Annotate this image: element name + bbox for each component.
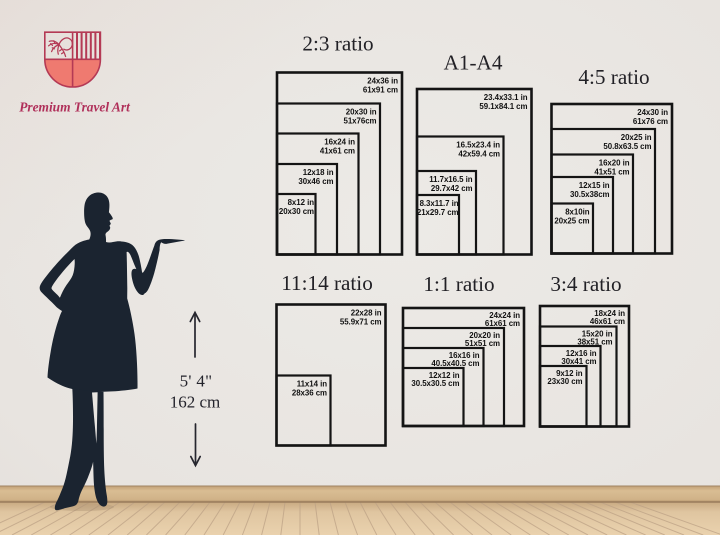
svg-text:15x20 in38x51 cm: 15x20 in38x51 cm (577, 329, 612, 346)
svg-text:A1-A4: A1-A4 (444, 51, 503, 75)
svg-text:5' 4": 5' 4" (180, 372, 213, 391)
svg-text:24x24 in61x61 cm: 24x24 in61x61 cm (485, 311, 520, 328)
svg-text:1:1 ratio: 1:1 ratio (423, 272, 494, 296)
svg-text:2:3 ratio: 2:3 ratio (302, 32, 373, 56)
svg-text:8.3x11.7 in21x29.7 cm: 8.3x11.7 in21x29.7 cm (417, 199, 459, 217)
svg-text:16.5x23.4 in42x59.4 cm: 16.5x23.4 in42x59.4 cm (456, 141, 500, 159)
svg-text:162 cm: 162 cm (170, 393, 221, 412)
svg-text:11:14 ratio: 11:14 ratio (281, 271, 373, 295)
svg-text:16x20 in41x51 cm: 16x20 in41x51 cm (594, 159, 629, 177)
svg-text:23.4x33.1 in59.1x84.1 cm: 23.4x33.1 in59.1x84.1 cm (479, 93, 527, 111)
svg-text:11x14 in28x36 cm: 11x14 in28x36 cm (292, 380, 327, 398)
svg-text:Premium Travel Art: Premium Travel Art (19, 100, 131, 115)
svg-text:20x30 in51x76cm: 20x30 in51x76cm (344, 108, 377, 126)
svg-text:24x36 in61x91 cm: 24x36 in61x91 cm (363, 77, 398, 95)
svg-text:12x16 in30x41 cm: 12x16 in30x41 cm (561, 349, 596, 366)
svg-text:16x24 in41x61 cm: 16x24 in41x61 cm (320, 138, 355, 156)
svg-text:11.7x16.5 in29.7x42 cm: 11.7x16.5 in29.7x42 cm (429, 175, 473, 193)
svg-text:3:4 ratio: 3:4 ratio (550, 272, 621, 296)
svg-text:4:5 ratio: 4:5 ratio (578, 65, 649, 89)
svg-text:18x24 in46x61 cm: 18x24 in46x61 cm (590, 309, 625, 326)
svg-text:24x30 in61x76 cm: 24x30 in61x76 cm (633, 108, 668, 126)
svg-text:20x20 in51x51 cm: 20x20 in51x51 cm (465, 331, 500, 348)
svg-text:12x18 in30x46 cm: 12x18 in30x46 cm (298, 168, 333, 186)
